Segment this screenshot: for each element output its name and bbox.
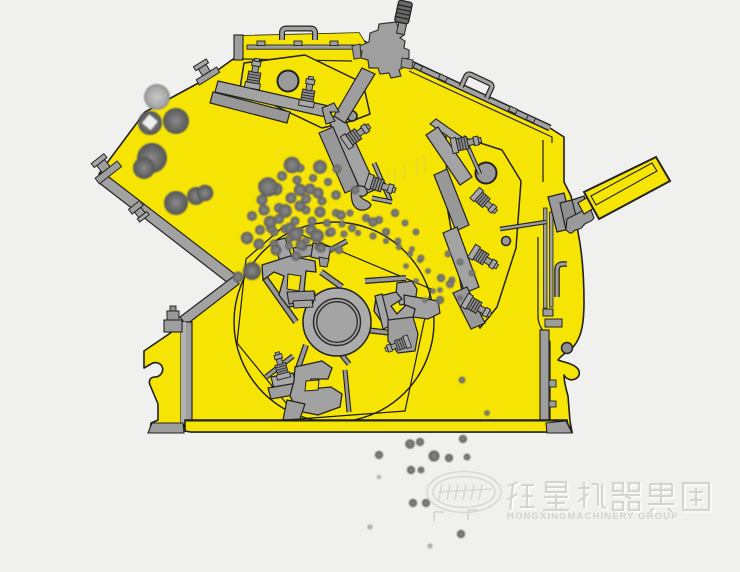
svg-text:HONGXINGMACHINERY GROUP: HONGXINGMACHINERY GROUP xyxy=(507,511,679,522)
